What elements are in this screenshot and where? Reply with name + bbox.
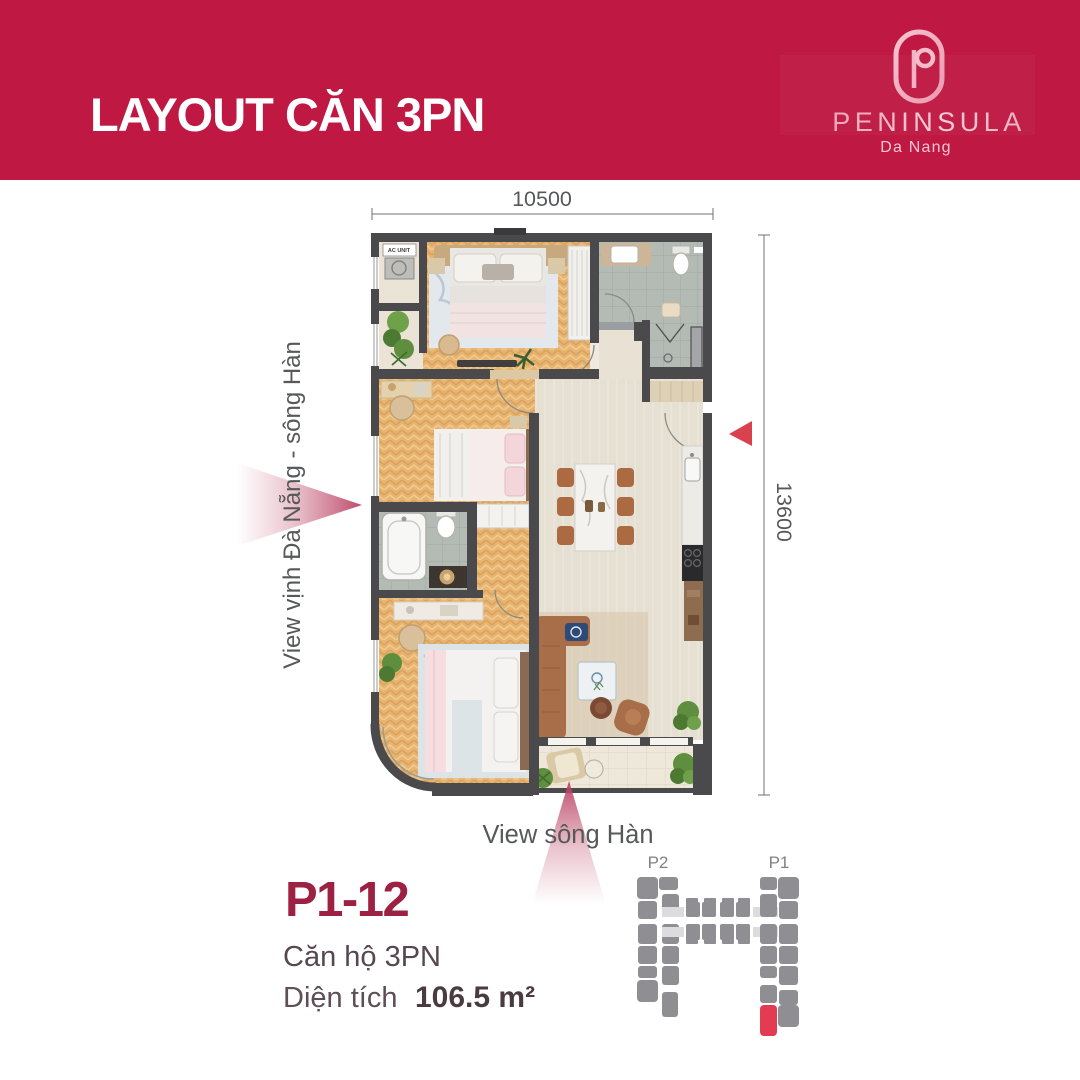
svg-text:106.5 m²: 106.5 m² <box>415 981 535 1014</box>
svg-text:P2: P2 <box>648 853 669 872</box>
svg-text:Diện tích: Diện tích <box>283 982 397 1014</box>
svg-text:View sông Hàn: View sông Hàn <box>482 821 653 849</box>
svg-text:Căn hộ 3PN: Căn hộ 3PN <box>283 941 441 973</box>
svg-text:View vịnh Đà Nẵng - sông Hàn: View vịnh Đà Nẵng - sông Hàn <box>278 341 306 669</box>
svg-text:PENINSULA: PENINSULA <box>832 107 1026 137</box>
svg-text:P1-12: P1-12 <box>285 873 409 927</box>
svg-text:Da Nang: Da Nang <box>880 139 952 156</box>
svg-text:AC UNIT: AC UNIT <box>388 248 411 254</box>
svg-text:13600: 13600 <box>772 482 796 542</box>
svg-text:LAYOUT CĂN 3PN: LAYOUT CĂN 3PN <box>90 88 484 141</box>
svg-text:10500: 10500 <box>512 187 572 211</box>
svg-text:P1: P1 <box>769 853 790 872</box>
